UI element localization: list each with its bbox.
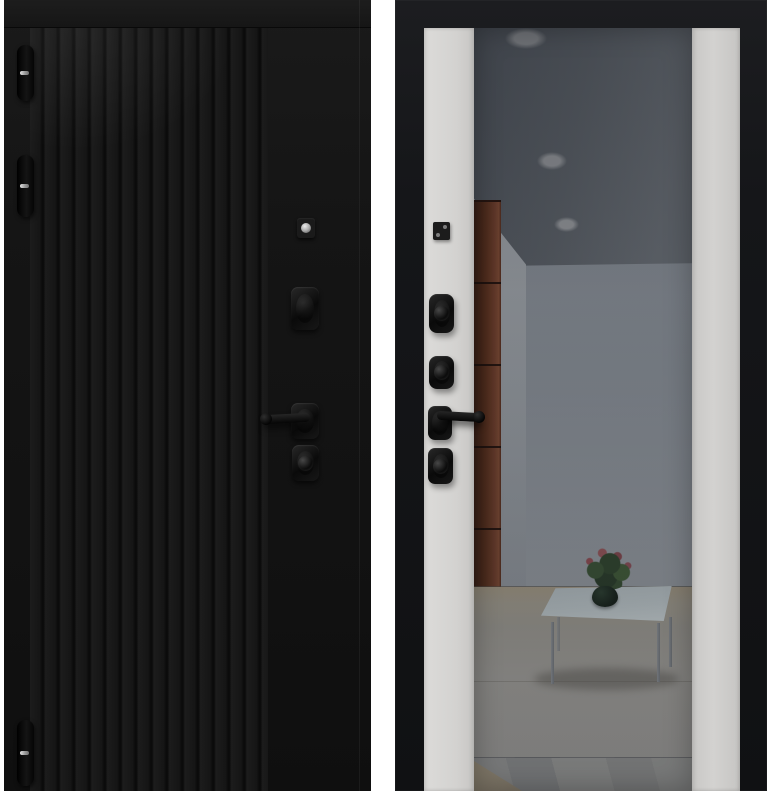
door-exterior-side: [4, 0, 371, 791]
lock-cylinder-plate: [297, 218, 315, 238]
middle-thumbturn: [429, 356, 454, 389]
door-interior-side: [395, 0, 767, 791]
hinge-pin: [20, 71, 29, 75]
hinge-middle: [17, 155, 34, 217]
mirror-panel: [474, 28, 692, 791]
thumbturn-knob: [298, 456, 313, 471]
reflected-ceiling: [474, 28, 692, 273]
hinge-bottom: [17, 720, 34, 786]
table-leg: [669, 617, 672, 667]
hinge-pin: [20, 184, 29, 188]
thumbturn-knob: [433, 459, 448, 474]
recessed-light-icon: [505, 28, 547, 49]
lock-cylinder: [301, 223, 311, 233]
reflected-potted-plant: [578, 546, 636, 608]
interior-right-panel: [692, 28, 740, 791]
hinge-pin: [20, 751, 29, 755]
upper-lock-escutcheon: [291, 287, 319, 330]
plant-foliage: [578, 546, 636, 590]
recessed-light-icon: [554, 217, 579, 232]
door-top-rail: [4, 0, 371, 28]
table-leg: [557, 617, 560, 651]
plant-pot: [592, 586, 618, 607]
thumbturn-knob: [434, 365, 449, 380]
fluted-panel: [30, 28, 268, 791]
reflected-brown-cabinet: [474, 200, 501, 607]
lower-thumbturn: [428, 448, 453, 484]
table-leg: [657, 623, 660, 682]
table-leg: [551, 622, 554, 684]
hinge-top: [17, 45, 34, 101]
lower-lock-escutcheon: [292, 445, 319, 481]
screw-icon: [443, 225, 447, 229]
cylinder-cover-plate: [433, 222, 450, 240]
thumbturn-knob: [434, 306, 449, 321]
screw-icon: [436, 233, 440, 237]
upper-thumbturn: [429, 294, 454, 333]
door-product-photo: [0, 0, 767, 791]
recessed-light-icon: [537, 152, 567, 170]
